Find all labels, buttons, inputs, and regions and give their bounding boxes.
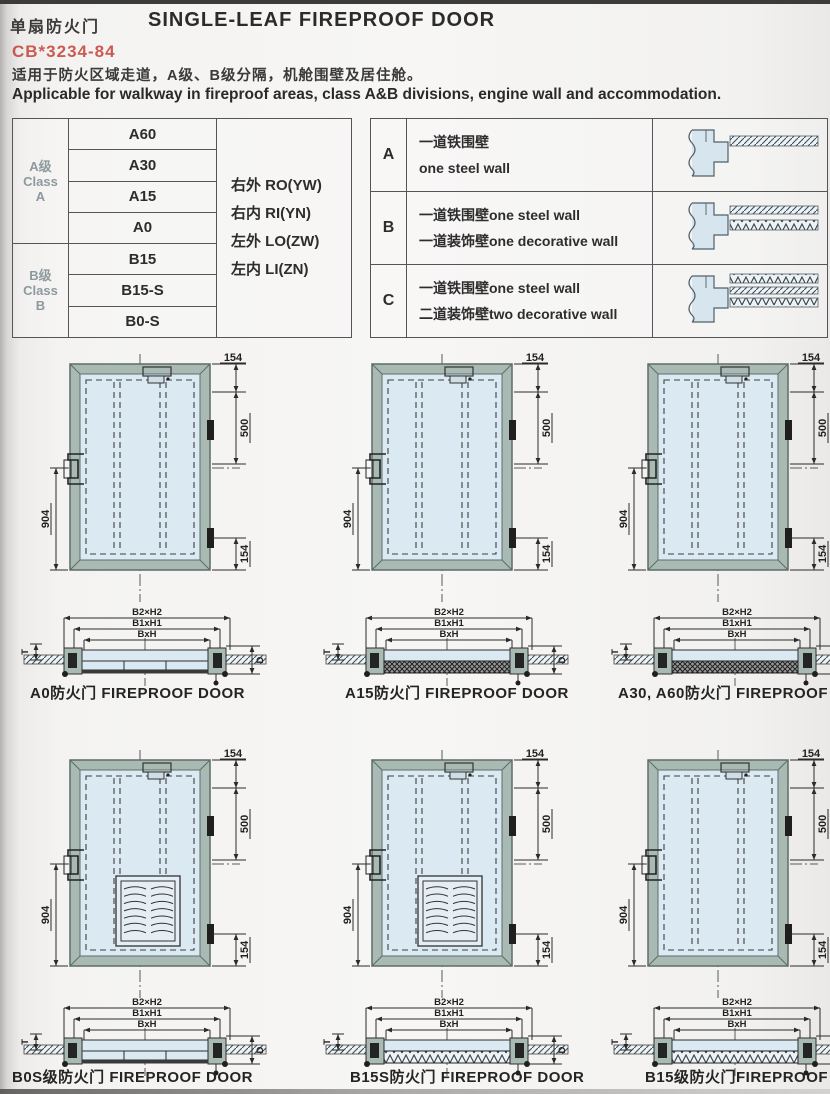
wall-installation-table: A一道铁围壁one steel wallB一道铁围壁one steel wall…: [370, 118, 828, 338]
door-elevation-cell: 154500154904: [342, 748, 592, 1005]
svg-text:B2×H2: B2×H2: [132, 607, 162, 618]
svg-text:500: 500: [239, 815, 251, 833]
hinge-icon: [509, 816, 516, 836]
door-model: A60: [69, 119, 217, 150]
svg-text:B2×H2: B2×H2: [722, 997, 752, 1008]
drawing-caption: B15级防火门FIREPROOF DOO: [645, 1066, 830, 1087]
standard-code: CB*3234-84: [12, 42, 116, 62]
svg-text:B2×H2: B2×H2: [434, 607, 464, 618]
svg-text:154: 154: [239, 544, 251, 563]
door-section-drawing: B2×H2B1xH1BxHDT: [322, 604, 572, 688]
drawing-caption: A0防火门 FIREPROOF DOOR: [30, 682, 245, 703]
svg-text:BxH: BxH: [727, 629, 746, 640]
wall-desc-line: 一道铁围壁one steel wall: [419, 275, 651, 301]
svg-text:BxH: BxH: [727, 1019, 746, 1030]
svg-text:T: T: [610, 1039, 621, 1045]
steel-wall-plus-one-decorative-wall-section: [654, 193, 826, 259]
svg-text:BxH: BxH: [439, 1019, 458, 1030]
door-section-cell: B2×H2B1xH1BxHDT: [20, 604, 270, 693]
door-model: A30: [69, 150, 217, 181]
svg-text:154: 154: [541, 544, 553, 563]
svg-text:904: 904: [618, 905, 630, 924]
door-elevation-cell: 154500154904: [40, 748, 290, 1005]
class-group-label: B级ClassB: [13, 244, 69, 338]
door-model: B0-S: [69, 306, 217, 337]
svg-text:B1xH1: B1xH1: [722, 618, 752, 629]
svg-text:500: 500: [541, 815, 553, 833]
door-section-drawing: B2×H2B1xH1BxHDT: [610, 604, 830, 688]
door-model: B15-S: [69, 275, 217, 306]
door-model: A0: [69, 212, 217, 243]
door-elevation-drawing: 154500154904: [342, 748, 592, 1000]
svg-text:500: 500: [817, 419, 829, 437]
door-elevation-drawing: 154500154904: [618, 352, 830, 604]
wall-desc-line: 一道装饰壁one decorative wall: [419, 228, 651, 254]
wall-section-diagram-cell: [653, 119, 828, 192]
svg-text:B1xH1: B1xH1: [132, 618, 162, 629]
class-table-grid: A级ClassAA60右外 RO(YW)右内 RI(YN)左外 LO(ZW)左内…: [12, 118, 352, 338]
svg-text:D: D: [557, 1046, 568, 1053]
svg-text:D: D: [255, 1046, 266, 1053]
svg-text:904: 904: [342, 509, 354, 528]
wall-section-diagram-cell: [653, 192, 828, 265]
wall-type-key: C: [371, 265, 407, 338]
door-section-cell: B2×H2B1xH1BxHDT: [610, 604, 830, 693]
svg-text:154: 154: [802, 748, 821, 760]
page-title-chinese: 单扇防火门: [10, 13, 100, 37]
wall-table-grid: A一道铁围壁one steel wallB一道铁围壁one steel wall…: [370, 118, 828, 338]
svg-text:500: 500: [239, 419, 251, 437]
svg-text:D: D: [557, 656, 568, 663]
description-english: Applicable for walkway in fireproof area…: [12, 86, 721, 104]
svg-text:154: 154: [817, 940, 829, 959]
drawing-caption: A30, A60防火门 FIREPROOF DO: [618, 682, 830, 703]
door-elevation-cell: 154500154904: [618, 748, 830, 1005]
orientation-option: 右外 RO(YW): [231, 172, 350, 200]
svg-text:154: 154: [526, 352, 545, 364]
svg-text:904: 904: [618, 509, 630, 528]
svg-text:T: T: [610, 649, 621, 655]
svg-text:500: 500: [541, 419, 553, 437]
svg-text:B2×H2: B2×H2: [722, 607, 752, 618]
door-elevation-drawing: 154500154904: [40, 352, 290, 604]
svg-text:500: 500: [817, 815, 829, 833]
svg-text:T: T: [20, 649, 31, 655]
scan-top-edge: [0, 0, 830, 4]
door-elevation-drawing: 154500154904: [40, 748, 290, 1000]
drawing-caption: A15防火门 FIREPROOF DOOR: [345, 682, 569, 703]
svg-text:T: T: [322, 649, 333, 655]
hinge-icon: [207, 420, 214, 440]
hinge-icon: [785, 816, 792, 836]
svg-text:B1xH1: B1xH1: [722, 1008, 752, 1019]
svg-text:154: 154: [802, 352, 821, 364]
svg-text:B1xH1: B1xH1: [132, 1008, 162, 1019]
svg-text:154: 154: [239, 940, 251, 959]
wall-section-diagram-cell: [653, 265, 828, 338]
wall-desc-line: 一道铁围壁: [419, 129, 651, 155]
class-group-label: A级ClassA: [13, 119, 69, 244]
door-elevation-drawing: 154500154904: [618, 748, 830, 1000]
wall-desc-line: 二道装饰壁two decorative wall: [419, 301, 651, 327]
wall-type-key: B: [371, 192, 407, 265]
page-title-english: SINGLE-LEAF FIREPROOF DOOR: [148, 9, 495, 32]
hinge-icon: [509, 420, 516, 440]
door-section-cell: B2×H2B1xH1BxHDT: [322, 604, 572, 693]
svg-text:B2×H2: B2×H2: [434, 997, 464, 1008]
svg-text:BxH: BxH: [137, 629, 156, 640]
door-model: A15: [69, 181, 217, 212]
svg-text:904: 904: [40, 509, 52, 528]
door-model: B15: [69, 244, 217, 275]
wall-desc-line: 一道铁围壁one steel wall: [419, 202, 651, 228]
svg-text:T: T: [322, 1039, 333, 1045]
louver-vent: [116, 876, 180, 946]
door-elevation-drawing: 154500154904: [342, 352, 592, 604]
svg-text:D: D: [255, 656, 266, 663]
description-chinese: 适用于防火区域走道，A级、B级分隔，机舱围壁及居住舱。: [12, 64, 422, 85]
catalog-page: 单扇防火门 SINGLE-LEAF FIREPROOF DOOR CB*3234…: [0, 0, 830, 1094]
orientation-options: 右外 RO(YW)右内 RI(YN)左外 LO(ZW)左内 LI(ZN): [217, 119, 352, 338]
wall-type-description: 一道铁围壁one steel wall: [407, 119, 653, 192]
svg-text:904: 904: [342, 905, 354, 924]
door-elevation-cell: 154500154904: [618, 352, 830, 609]
svg-text:904: 904: [40, 905, 52, 924]
svg-text:T: T: [20, 1039, 31, 1045]
wall-type-key: A: [371, 119, 407, 192]
orientation-option: 右内 RI(YN): [231, 200, 350, 228]
orientation-option: 左外 LO(ZW): [231, 228, 350, 256]
svg-text:B1xH1: B1xH1: [434, 1008, 464, 1019]
svg-text:154: 154: [817, 544, 829, 563]
svg-text:B2×H2: B2×H2: [132, 997, 162, 1008]
svg-text:B1xH1: B1xH1: [434, 618, 464, 629]
hinge-icon: [785, 420, 792, 440]
one-steel-wall-section: [654, 120, 826, 186]
svg-text:154: 154: [224, 748, 243, 760]
svg-text:BxH: BxH: [137, 1019, 156, 1030]
drawing-caption: B15S防火门 FIREPROOF DOOR: [350, 1066, 584, 1087]
svg-text:154: 154: [541, 940, 553, 959]
door-elevation-cell: 154500154904: [40, 352, 290, 609]
drawing-caption: B0S级防火门 FIREPROOF DOOR: [12, 1066, 253, 1087]
svg-text:BxH: BxH: [439, 629, 458, 640]
class-table: A级ClassAA60右外 RO(YW)右内 RI(YN)左外 LO(ZW)左内…: [12, 118, 352, 338]
louver-vent: [418, 876, 482, 946]
svg-text:154: 154: [224, 352, 243, 364]
steel-wall-plus-two-decorative-walls-section: [654, 266, 826, 332]
svg-text:154: 154: [526, 748, 545, 760]
wall-desc-line: one steel wall: [419, 155, 651, 181]
door-elevation-cell: 154500154904: [342, 352, 592, 609]
hinge-icon: [207, 816, 214, 836]
orientation-option: 左内 LI(ZN): [231, 256, 350, 284]
door-section-drawing: B2×H2B1xH1BxHDT: [20, 604, 270, 688]
wall-type-description: 一道铁围壁one steel wall二道装饰壁two decorative w…: [407, 265, 653, 338]
wall-type-description: 一道铁围壁one steel wall一道装饰壁one decorative w…: [407, 192, 653, 265]
scan-bottom-edge: [0, 1089, 830, 1094]
